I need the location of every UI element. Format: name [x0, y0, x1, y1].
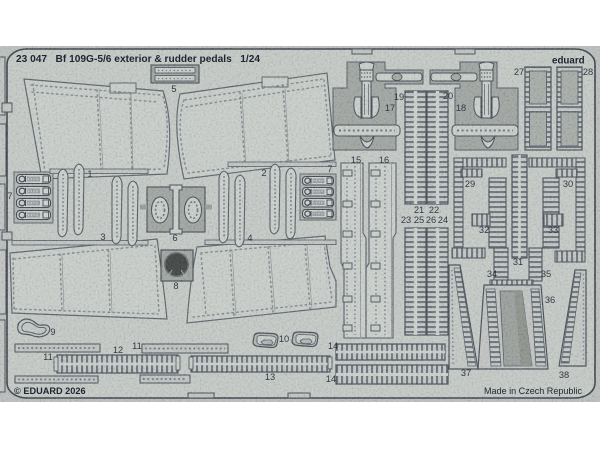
svg-text:Made in Czech Republic: Made in Czech Republic	[484, 386, 582, 396]
svg-text:23 047 Bf 109G-5/6 exterior: 23 047 Bf 109G-5/6 exterior & rudder ped…	[16, 54, 260, 65]
svg-text:© EDUARD 2026: © EDUARD 2026	[14, 386, 86, 396]
svg-text:eduard: eduard	[552, 56, 585, 67]
